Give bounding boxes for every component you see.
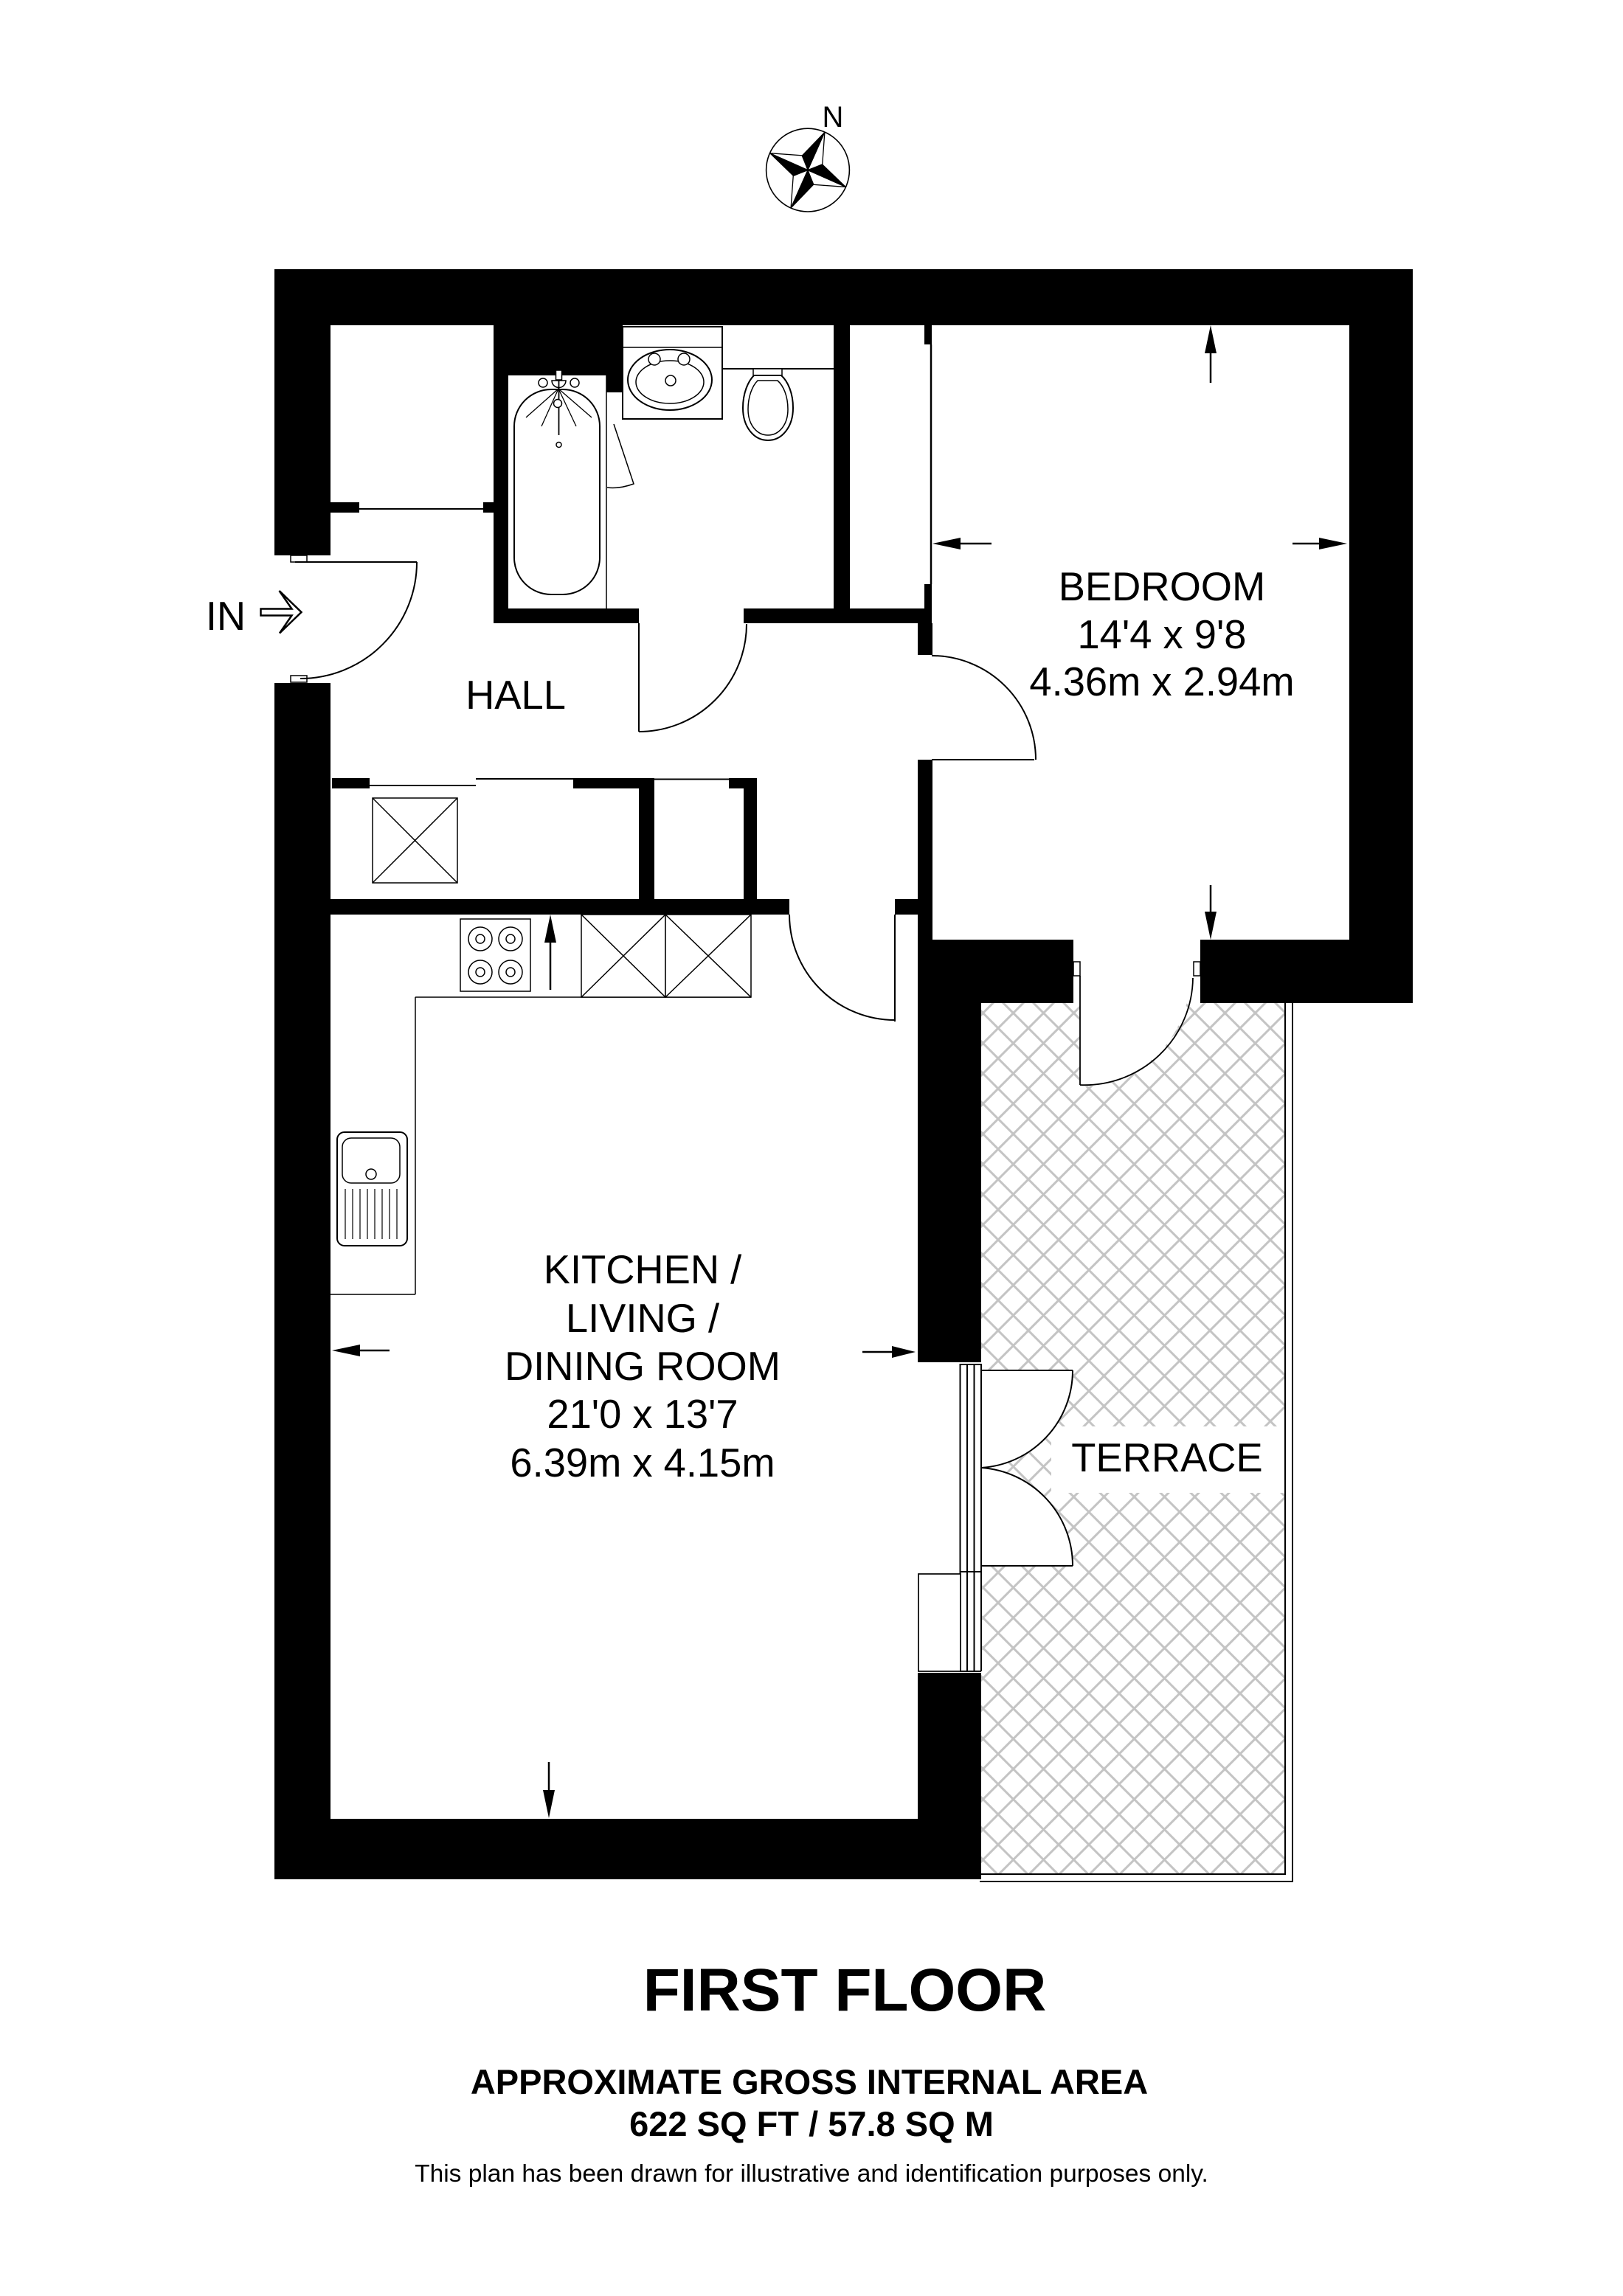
svg-text:6.39m x 4.15m: 6.39m x 4.15m <box>510 1440 775 1485</box>
svg-text:DINING ROOM: DINING ROOM <box>505 1344 781 1389</box>
svg-text:IN: IN <box>206 594 246 639</box>
svg-text:622 SQ FT / 57.8 SQ M: 622 SQ FT / 57.8 SQ M <box>629 2104 994 2143</box>
svg-text:N: N <box>823 101 844 133</box>
svg-text:This plan has been drawn for i: This plan has been drawn for illustrativ… <box>415 2160 1208 2188</box>
svg-text:HALL: HALL <box>466 673 566 718</box>
svg-text:FIRST FLOOR: FIRST FLOOR <box>643 1957 1047 2024</box>
svg-text:KITCHEN /: KITCHEN / <box>544 1247 742 1292</box>
svg-text:21'0 x 13'7: 21'0 x 13'7 <box>547 1392 738 1437</box>
svg-text:BEDROOM: BEDROOM <box>1059 564 1266 609</box>
svg-text:4.36m x 2.94m: 4.36m x 2.94m <box>1029 659 1294 704</box>
svg-text:14'4 x 9'8: 14'4 x 9'8 <box>1077 612 1246 657</box>
svg-text:TERRACE: TERRACE <box>1071 1435 1262 1480</box>
svg-text:APPROXIMATE GROSS INTERNAL ARE: APPROXIMATE GROSS INTERNAL AREA <box>471 2062 1148 2101</box>
svg-text:LIVING /: LIVING / <box>566 1296 720 1341</box>
